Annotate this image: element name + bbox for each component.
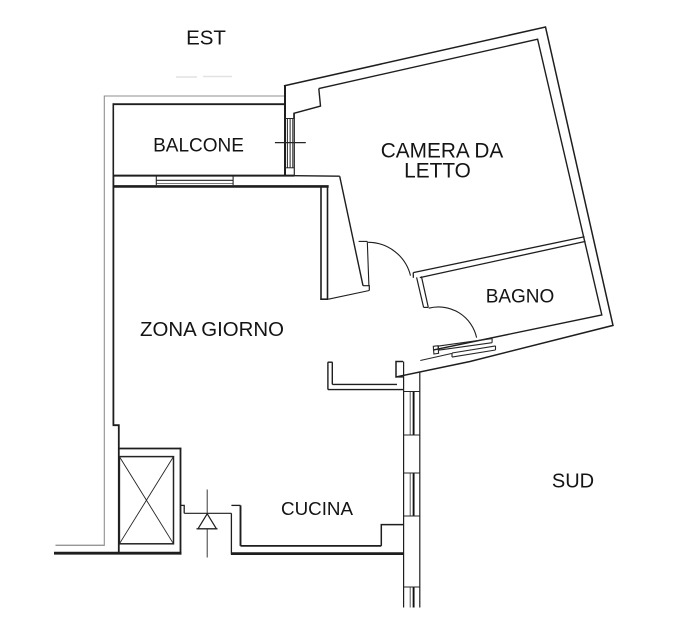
svg-text:EST: EST <box>186 27 226 50</box>
svg-text:BAGNO: BAGNO <box>486 287 555 308</box>
svg-text:CUCINA: CUCINA <box>281 498 353 519</box>
svg-text:LETTO: LETTO <box>404 160 471 183</box>
svg-text:BALCONE: BALCONE <box>153 136 244 157</box>
svg-text:ZONA GIORNO: ZONA GIORNO <box>140 319 284 341</box>
svg-text:SUD: SUD <box>552 471 594 493</box>
